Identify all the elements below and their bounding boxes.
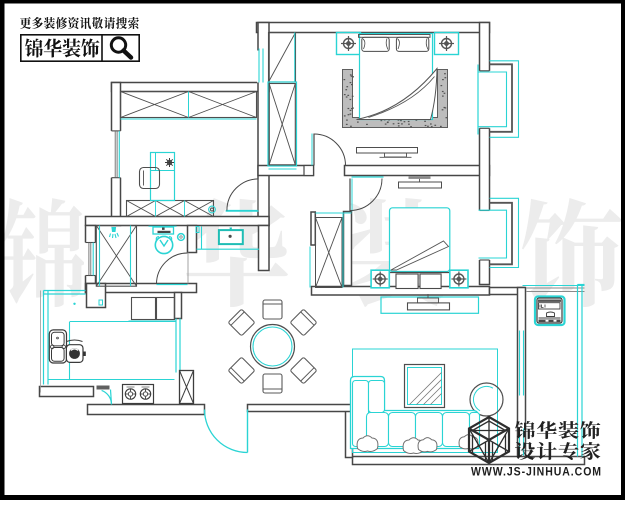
svg-text:WWW.JS-JINHUA.COM: WWW.JS-JINHUA.COM [471,465,602,479]
